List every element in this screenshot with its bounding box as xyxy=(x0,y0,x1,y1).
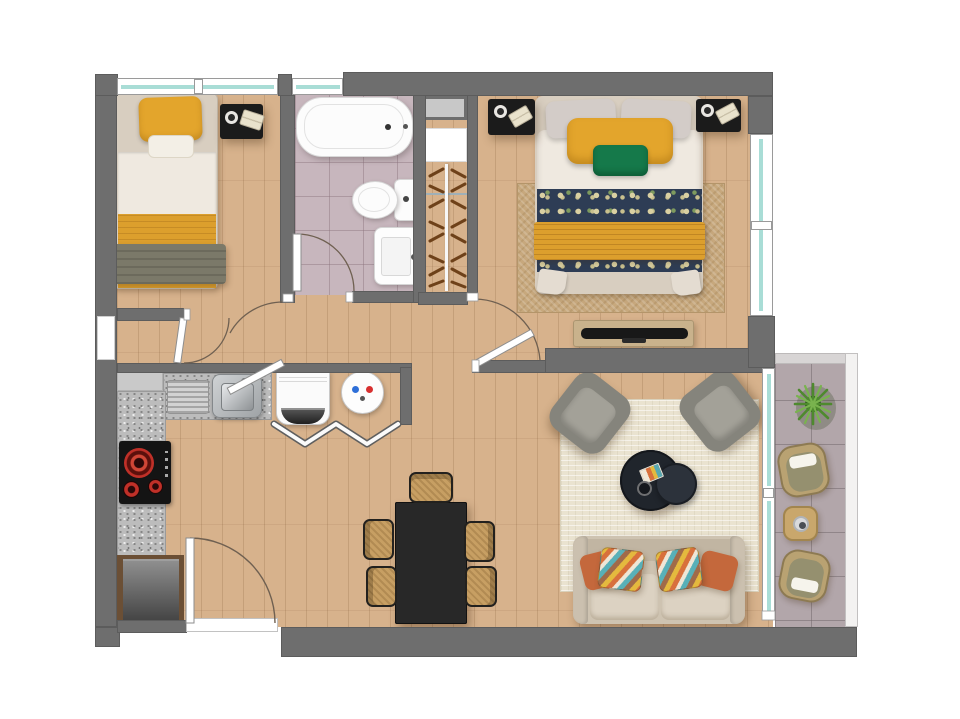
entry-door xyxy=(186,538,275,623)
bifold-doors xyxy=(274,424,398,444)
potted-plant xyxy=(795,384,836,430)
doors-and-details-overlay xyxy=(0,0,960,719)
door-jambs xyxy=(184,292,775,620)
clothes-hangers xyxy=(430,169,465,287)
master-bedroom-door xyxy=(473,299,540,368)
small-bedroom-door xyxy=(174,318,229,364)
apartment-floor-plan xyxy=(0,0,960,719)
hallway-door xyxy=(227,302,284,394)
bathroom-door xyxy=(293,234,354,291)
